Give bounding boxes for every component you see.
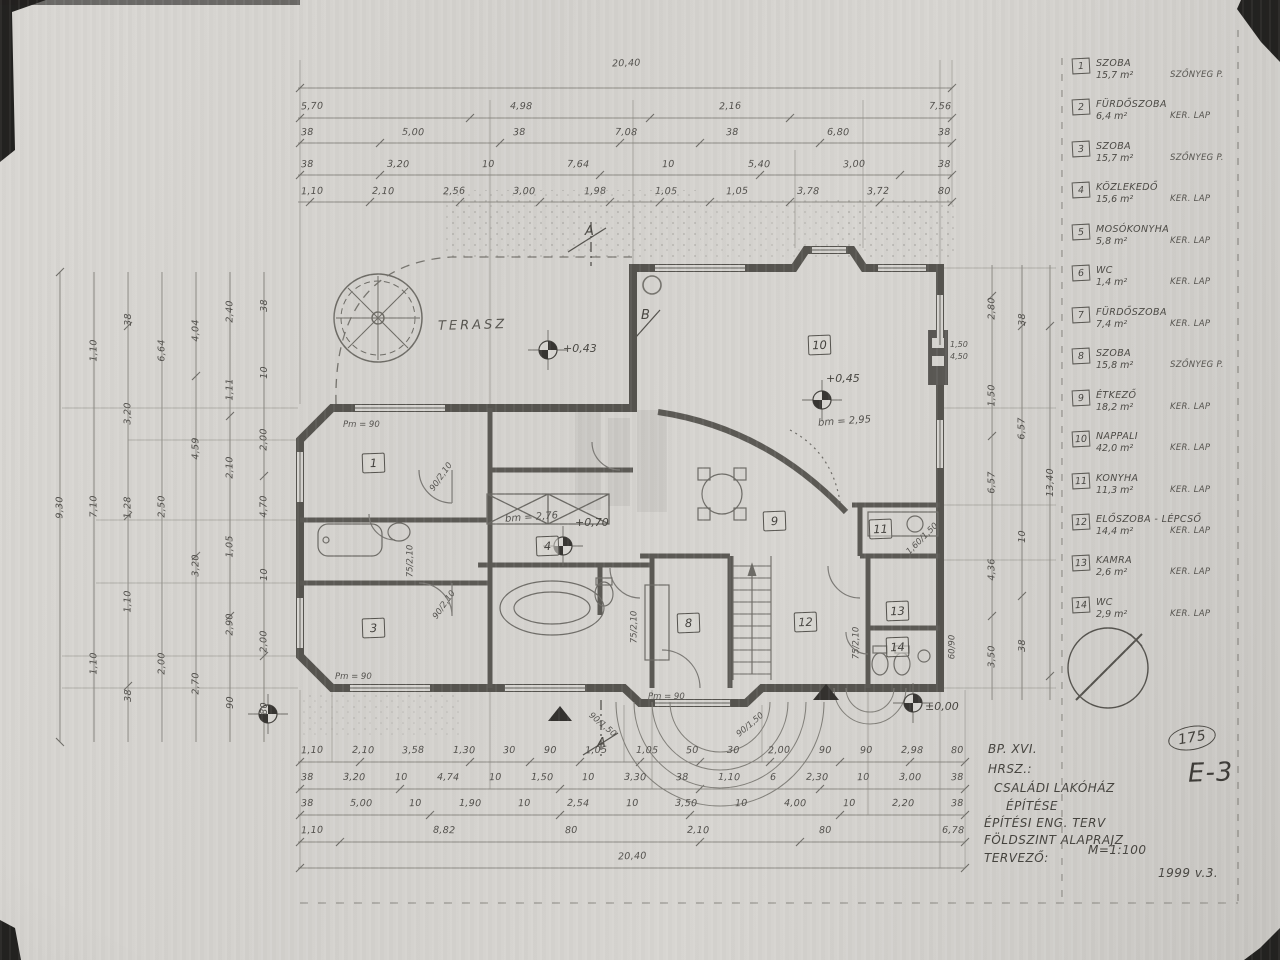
room-name: SZOBA — [1096, 141, 1264, 152]
room-marker: 13 — [886, 601, 910, 622]
sill-height-label: Pm = 90 — [335, 672, 372, 682]
room-finish: KER. LAP — [1170, 443, 1210, 454]
title-doc-type: ÉPÍTÉSI ENG. TERV — [984, 816, 1106, 830]
room-finish: KER. LAP — [1170, 526, 1210, 537]
room-area: 15,7 m² — [1096, 70, 1170, 81]
room-number: 12 — [1072, 514, 1091, 531]
door-size-label: 75/2,10 — [851, 627, 861, 660]
elevation-label: +0,43 — [563, 342, 597, 355]
room-finish: KER. LAP — [1170, 567, 1210, 578]
extension-lines — [62, 60, 1056, 868]
room-number: 7 — [1072, 306, 1091, 323]
room-name: WC — [1096, 597, 1264, 608]
title-project-line2: ÉPÍTÉSE — [1006, 799, 1058, 813]
title-project-line1: CSALÁDI LAKÓHÁZ — [994, 781, 1115, 795]
room-name: KAMRA — [1096, 555, 1264, 566]
room-area: 15,8 m² — [1096, 360, 1170, 371]
room-finish: SZŐNYEG P. — [1170, 360, 1224, 371]
sill-height-label: Pm = 90 — [648, 692, 685, 702]
title-date: 1999 v.3. — [1158, 866, 1218, 880]
room-number: 2 — [1072, 99, 1091, 116]
legend-row: 1 SZOBA 15,7 m²SZŐNYEG P. — [1072, 58, 1264, 81]
legend-row: 8 SZOBA 15,8 m²SZŐNYEG P. — [1072, 348, 1264, 371]
legend-row: 4 KÖZLEKEDŐ 15,6 m²KER. LAP — [1072, 182, 1264, 205]
room-number: 11 — [1072, 472, 1091, 489]
room-area: 11,3 m² — [1096, 485, 1170, 496]
room-marker: 4 — [536, 536, 560, 557]
room-name: KONYHA — [1096, 473, 1264, 484]
room-finish: KER. LAP — [1170, 402, 1210, 413]
room-area: 15,6 m² — [1096, 194, 1170, 205]
door-size-label: 75/2,10 — [405, 545, 415, 578]
room-area: 7,4 m² — [1096, 319, 1170, 330]
section-marker-label: A — [585, 224, 594, 239]
room-schedule: 1 SZOBA 15,7 m²SZŐNYEG P. 2 FÜRDŐSZOBA 6… — [1072, 58, 1264, 620]
room-number: 14 — [1072, 596, 1091, 613]
terrace-label: TERASZ — [438, 317, 508, 334]
legend-row: 10 NAPPALI 42,0 m²KER. LAP — [1072, 431, 1264, 454]
room-area: 1,4 m² — [1096, 277, 1170, 288]
north-symbol — [1068, 628, 1148, 708]
scan-watermark — [575, 410, 667, 512]
room-number: 4 — [1072, 182, 1091, 199]
room-number: 6 — [1072, 265, 1091, 282]
room-area: 2,9 m² — [1096, 609, 1170, 620]
blueprint-photo: 20,40 5,704,982,167,56 385,00387,08386,8… — [0, 0, 1280, 960]
legend-row: 13 KAMRA 2,6 m²KER. LAP — [1072, 555, 1264, 578]
window-size-label: 60/90 — [947, 635, 957, 660]
room-finish: KER. LAP — [1170, 485, 1210, 496]
room-name: ELŐSZOBA - LÉPCSŐ — [1096, 514, 1264, 525]
room-marker: 3 — [362, 618, 386, 639]
room-name: FÜRDŐSZOBA — [1096, 307, 1264, 318]
title-designer: TERVEZŐ: — [984, 851, 1049, 865]
room-marker: 9 — [763, 511, 787, 532]
room-number: 9 — [1072, 389, 1091, 406]
room-finish: KER. LAP — [1170, 111, 1210, 122]
room-name: SZOBA — [1096, 348, 1264, 359]
legend-row: 12 ELŐSZOBA - LÉPCSŐ 14,4 m²KER. LAP — [1072, 514, 1264, 537]
room-marker: 11 — [869, 519, 893, 540]
sheet-code: E-3 — [1187, 757, 1233, 789]
title-city: BP. XVI. — [988, 742, 1037, 756]
title-scale: M=1:100 — [1088, 843, 1147, 857]
legend-row: 2 FÜRDŐSZOBA 6,4 m²KER. LAP — [1072, 99, 1264, 122]
room-name: FÜRDŐSZOBA — [1096, 99, 1264, 110]
room-number: 8 — [1072, 348, 1091, 365]
room-area: 14,4 m² — [1096, 526, 1170, 537]
room-area: 2,6 m² — [1096, 567, 1170, 578]
room-area: 15,7 m² — [1096, 153, 1170, 164]
room-number: 10 — [1072, 431, 1091, 448]
legend-row: 7 FÜRDŐSZOBA 7,4 m²KER. LAP — [1072, 307, 1264, 330]
elevation-label: ±0,00 — [925, 700, 959, 713]
room-name: MOSÓKONYHA — [1096, 224, 1264, 235]
room-finish: KER. LAP — [1170, 609, 1210, 620]
room-finish: KER. LAP — [1170, 277, 1210, 288]
flue-label: 4,50 — [950, 352, 968, 361]
room-name: WC — [1096, 265, 1264, 276]
room-number: 5 — [1072, 223, 1091, 240]
room-finish: KER. LAP — [1170, 319, 1210, 330]
room-marker: 8 — [677, 613, 701, 634]
room-number: 13 — [1072, 555, 1091, 572]
legend-row: 14 WC 2,9 m²KER. LAP — [1072, 597, 1264, 620]
room-area: 18,2 m² — [1096, 402, 1170, 413]
room-marker: 12 — [794, 612, 818, 633]
room-name: SZOBA — [1096, 58, 1264, 69]
legend-row: 5 MOSÓKONYHA 5,8 m²KER. LAP — [1072, 224, 1264, 247]
room-name: NAPPALI — [1096, 431, 1264, 442]
sill-height-label: Pm = 90 — [343, 420, 380, 430]
elevation-label: +0,70 — [575, 516, 609, 529]
room-finish: SZŐNYEG P. — [1170, 70, 1224, 81]
room-marker: 14 — [886, 637, 910, 658]
room-number: 1 — [1072, 58, 1091, 75]
section-marker-label: B — [641, 308, 650, 323]
legend-row: 11 KONYHA 11,3 m²KER. LAP — [1072, 473, 1264, 496]
stairs — [733, 556, 771, 680]
section-marker-label: A — [597, 736, 606, 751]
room-area: 6,4 m² — [1096, 111, 1170, 122]
room-finish: KER. LAP — [1170, 194, 1210, 205]
room-area: 5,8 m² — [1096, 236, 1170, 247]
flue-label: 1,50 — [950, 340, 968, 349]
room-name: KÖZLEKEDŐ — [1096, 182, 1264, 193]
room-area: 42,0 m² — [1096, 443, 1170, 454]
title-parcel: HRSZ.: — [988, 762, 1032, 776]
tree — [334, 274, 422, 362]
legend-row: 3 SZOBA 15,7 m²SZŐNYEG P. — [1072, 141, 1264, 164]
legend-row: 6 WC 1,4 m²KER. LAP — [1072, 265, 1264, 288]
room-marker: 10 — [808, 335, 832, 356]
legend-row: 9 ÉTKEZŐ 18,2 m²KER. LAP — [1072, 390, 1264, 413]
room-finish: KER. LAP — [1170, 236, 1210, 247]
door-size-label: 75/2,10 — [629, 611, 639, 644]
room-finish: SZŐNYEG P. — [1170, 153, 1224, 164]
room-number: 3 — [1072, 140, 1091, 157]
room-name: ÉTKEZŐ — [1096, 390, 1264, 401]
room-marker: 1 — [362, 453, 386, 474]
elevation-label: +0,45 — [826, 372, 860, 385]
